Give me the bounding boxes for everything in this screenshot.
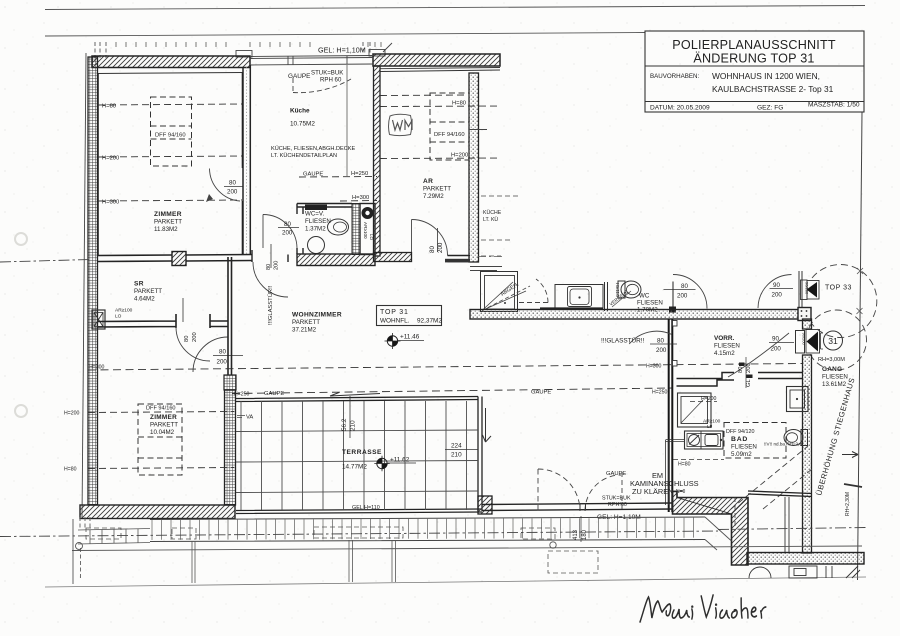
svg-text:4.64M2: 4.64M2 (134, 296, 155, 303)
svg-text:AR≥100: AR≥100 (115, 308, 133, 314)
svg-text:80: 80 (681, 283, 688, 290)
svg-text:200: 200 (746, 363, 752, 373)
svg-text:90: 90 (773, 282, 780, 289)
svg-text:200: 200 (656, 347, 667, 354)
svg-text:H=80: H=80 (678, 462, 691, 468)
svg-text:RH=3,00M: RH=3,00M (818, 357, 845, 363)
svg-text:H=300: H=300 (102, 200, 119, 206)
svg-text:BAUVORHABEN:: BAUVORHABEN: (650, 73, 699, 80)
svg-text:H=200: H=200 (64, 411, 80, 417)
svg-text:TOP 31: TOP 31 (380, 309, 409, 316)
svg-text:!!!GLASSTÜR!!: !!!GLASSTÜR!! (601, 337, 645, 345)
svg-text:1.37M2: 1.37M2 (305, 226, 326, 233)
svg-text:Küche: Küche (290, 108, 310, 115)
svg-text:POLIERPLANAUSSCHNITT: POLIERPLANAUSSCHNITT (672, 38, 836, 52)
svg-text:H=80: H=80 (452, 101, 466, 107)
svg-text:4.15m2: 4.15m2 (714, 350, 735, 357)
svg-text:H=200: H=200 (451, 153, 468, 159)
svg-text:GANG: GANG (822, 366, 842, 373)
svg-text:H=300: H=300 (89, 365, 105, 371)
svg-text:WOHNHAUS IN 1200 WIEN,: WOHNHAUS IN 1200 WIEN, (712, 71, 820, 81)
svg-text:80: 80 (738, 367, 744, 373)
svg-text:GEL: H=1,10M: GEL: H=1,10M (318, 46, 366, 55)
svg-text:LO: LO (115, 314, 122, 320)
svg-text:FLIESEN: FLIESEN (305, 218, 331, 225)
svg-text:KÜCHE: KÜCHE (483, 209, 502, 216)
svg-text:RH=2,30M: RH=2,30M (845, 492, 851, 516)
svg-text:H=300: H=300 (352, 195, 369, 201)
svg-text:Lt!: Lt! (707, 424, 712, 430)
svg-text:WC: WC (639, 293, 650, 300)
svg-text:H=300: H=300 (646, 364, 662, 370)
svg-text:80: 80 (429, 246, 436, 253)
svg-text:GEZ: FG: GEZ: FG (757, 105, 783, 112)
svg-text:200: 200 (772, 292, 783, 299)
svg-text:31: 31 (828, 336, 838, 346)
svg-text:AR≥100: AR≥100 (703, 419, 721, 425)
svg-text:+11.46: +11.46 (400, 334, 420, 341)
svg-text:37.21M2: 37.21M2 (292, 327, 317, 334)
svg-text:180: 180 (582, 529, 588, 540)
svg-text:!!!GLASSTÜR!!: !!!GLASSTÜR!! (267, 285, 274, 325)
svg-text:LT. KÜCHENDETAILPLAN: LT. KÜCHENDETAILPLAN (271, 152, 337, 159)
svg-text:14.77M2: 14.77M2 (342, 464, 367, 471)
svg-text:GAUPE: GAUPE (531, 390, 551, 396)
svg-text:LT. KÜ: LT. KÜ (483, 216, 498, 223)
svg-text:PARKETT: PARKETT (154, 219, 182, 226)
svg-text:FLIESEN: FLIESEN (637, 300, 663, 307)
svg-text:SR: SR (134, 281, 144, 288)
svg-text:AR≥100: AR≥100 (363, 222, 368, 239)
svg-text:200: 200 (437, 242, 444, 253)
svg-text:DFF 94/120: DFF 94/120 (726, 429, 754, 435)
svg-text:200: 200 (282, 230, 293, 237)
svg-text:ZIMMER: ZIMMER (150, 414, 177, 421)
svg-text:KAULBACHSTRASSE 2- Top 31: KAULBACHSTRASSE 2- Top 31 (712, 84, 834, 94)
svg-text:H=80: H=80 (64, 467, 77, 473)
svg-text:PARKETT: PARKETT (150, 422, 178, 429)
svg-text:STUK=BUK: STUK=BUK (311, 70, 343, 77)
svg-text:10.04M2: 10.04M2 (150, 429, 175, 436)
svg-text:56.2: 56.2 (341, 418, 348, 431)
svg-text:H=250: H=250 (234, 392, 250, 398)
svg-text:ÄNDERUNG TOP 31: ÄNDERUNG TOP 31 (693, 52, 814, 66)
svg-text:GAUPE: GAUPE (606, 471, 626, 477)
svg-text:DFF 94/160: DFF 94/160 (434, 132, 465, 138)
svg-text:200: 200 (192, 332, 198, 342)
svg-text:200: 200 (217, 359, 228, 366)
svg-text:RPH 60: RPH 60 (320, 77, 342, 84)
svg-text:VORR.: VORR. (714, 335, 734, 342)
svg-text:13.61M2: 13.61M2 (822, 381, 847, 388)
svg-text:FLIESEN: FLIESEN (822, 374, 848, 381)
svg-text:GAUPE: GAUPE (303, 172, 323, 178)
svg-text:H=250: H=250 (351, 171, 368, 177)
svg-text:GAUPE: GAUPE (264, 391, 284, 397)
svg-text:200: 200 (227, 189, 238, 196)
svg-text:80: 80 (284, 221, 291, 228)
svg-text:KÜCHE, FLIESEN,ABGH.DECKE: KÜCHE, FLIESEN,ABGH.DECKE (271, 145, 356, 152)
svg-text:AR: AR (423, 178, 433, 185)
svg-text:H=250: H=250 (652, 390, 668, 396)
svg-text:FLIESEN: FLIESEN (714, 343, 740, 350)
svg-text:+11.62: +11.62 (390, 457, 410, 464)
svg-text:TERRASSE: TERRASSE (342, 449, 382, 456)
svg-text:MASZSTAB: 1/50: MASZSTAB: 1/50 (808, 102, 860, 109)
svg-text:!!V!! nd.ba.RH=2,0: !!V!! nd.ba.RH=2,0 (764, 442, 802, 447)
svg-text:DFF 94/160: DFF 94/160 (155, 133, 186, 139)
svg-text:GEL H=110: GEL H=110 (352, 505, 380, 511)
svg-text:7.29M2: 7.29M2 (423, 193, 444, 200)
svg-text:PARKETT: PARKETT (423, 186, 451, 193)
svg-text:210: 210 (451, 452, 462, 459)
svg-text:92,37M2: 92,37M2 (417, 318, 442, 325)
svg-text:VA: VA (246, 415, 253, 421)
svg-text:H=200: H=200 (701, 396, 717, 402)
svg-text:FLIESEN: FLIESEN (731, 444, 757, 451)
svg-text:DFF 94/160: DFF 94/160 (146, 406, 176, 412)
svg-text:200: 200 (677, 293, 688, 300)
svg-text:ZIMMER: ZIMMER (154, 211, 182, 218)
svg-text:11.83M2: 11.83M2 (154, 226, 178, 233)
svg-text:TOP 33: TOP 33 (825, 285, 852, 292)
svg-text:413: 413 (573, 529, 579, 540)
svg-text:10.75M2: 10.75M2 (290, 121, 315, 128)
svg-text:PARKETT: PARKETT (292, 319, 320, 326)
svg-text:WC=V.: WC=V. (305, 211, 324, 218)
svg-text:GAUPE: GAUPE (288, 73, 310, 80)
svg-text:5.09m2: 5.09m2 (731, 451, 752, 458)
svg-text:H=200: H=200 (102, 156, 119, 162)
svg-text:PARKETT: PARKETT (134, 288, 162, 295)
svg-text:200: 200 (274, 261, 280, 270)
svg-text:80: 80 (657, 338, 664, 345)
svg-text:WOHNZIMMER: WOHNZIMMER (292, 312, 342, 319)
svg-text:80: 80 (219, 349, 226, 356)
svg-text:WOHNFL.: WOHNFL. (380, 318, 410, 325)
svg-text:H=80: H=80 (102, 104, 116, 110)
svg-text:STUK=BUK: STUK=BUK (602, 496, 631, 502)
svg-text:224: 224 (451, 443, 462, 450)
svg-text:80: 80 (229, 180, 236, 187)
svg-text:GL: GL (746, 378, 752, 387)
svg-text:210: 210 (350, 420, 357, 431)
svg-text:80: 80 (184, 336, 190, 342)
svg-text:BAD: BAD (731, 436, 748, 443)
svg-text:ZU KLÄREN: ZU KLÄREN (632, 487, 673, 496)
svg-text:DATUM: 20.05.2009: DATUM: 20.05.2009 (650, 105, 710, 112)
